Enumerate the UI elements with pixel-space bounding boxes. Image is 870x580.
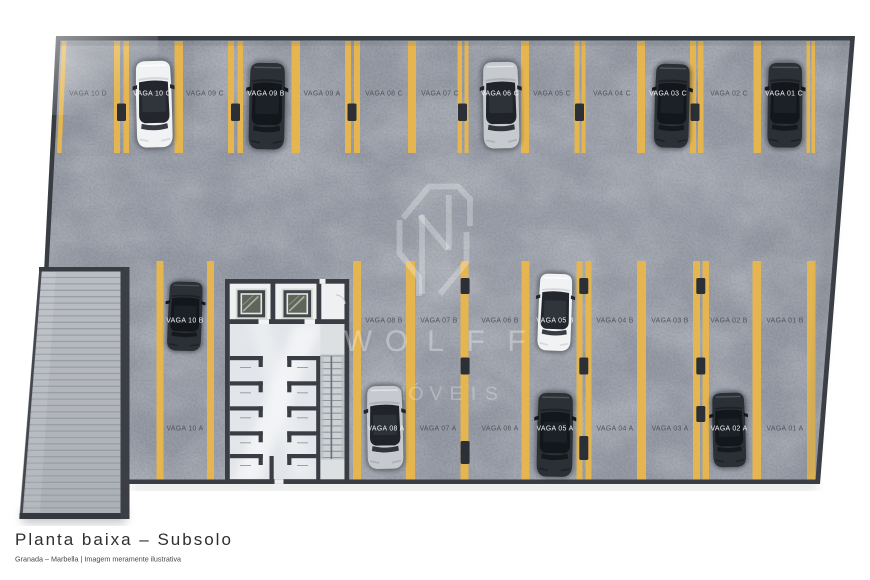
- svg-text:VAGA 01 C: VAGA 01 C: [765, 91, 803, 98]
- svg-text:VAGA 08 C: VAGA 08 C: [365, 91, 403, 98]
- svg-text:VAGA 03 B: VAGA 03 B: [651, 318, 689, 325]
- svg-text:VAGA 10 B: VAGA 10 B: [166, 318, 204, 325]
- svg-text:VAGA 06 C: VAGA 06 C: [481, 91, 519, 98]
- svg-text:VAGA 02 C: VAGA 02 C: [710, 91, 748, 98]
- svg-text:O: O: [385, 325, 408, 358]
- svg-text:VAGA 05 A: VAGA 05 A: [536, 426, 573, 433]
- svg-text:VAGA 09 C: VAGA 09 C: [186, 91, 224, 98]
- svg-text:VAGA 04 A: VAGA 04 A: [596, 426, 633, 433]
- svg-text:VAGA 02 B: VAGA 02 B: [710, 318, 748, 325]
- svg-text:VAGA 07 C: VAGA 07 C: [421, 91, 459, 98]
- svg-text:VAGA 04 C: VAGA 04 C: [593, 91, 631, 98]
- svg-text:VAGA 05 C: VAGA 05 C: [533, 91, 571, 98]
- svg-text:I: I: [471, 383, 476, 405]
- svg-text:VAGA 06 B: VAGA 06 B: [481, 318, 519, 325]
- svg-text:VAGA 03 C: VAGA 03 C: [649, 91, 687, 98]
- svg-text:VAGA 08 B: VAGA 08 B: [365, 318, 403, 325]
- svg-text:Ó: Ó: [408, 382, 423, 405]
- svg-text:Granada – Marbella | Imagem me: Granada – Marbella | Imagem meramente il…: [15, 555, 181, 564]
- svg-text:VAGA 06 A: VAGA 06 A: [481, 426, 518, 433]
- svg-text:VAGA 07 B: VAGA 07 B: [420, 318, 458, 325]
- svg-text:V: V: [429, 383, 442, 405]
- svg-text:Planta baixa – Subsolo: Planta baixa – Subsolo: [15, 530, 233, 549]
- svg-text:VAGA 08 A: VAGA 08 A: [367, 426, 404, 433]
- svg-text:VAGA 01 B: VAGA 01 B: [766, 318, 804, 325]
- svg-text:VAGA 09 B: VAGA 09 B: [247, 91, 285, 98]
- svg-text:VAGA 09 A: VAGA 09 A: [303, 91, 340, 98]
- svg-text:VAGA 03 A: VAGA 03 A: [651, 426, 688, 433]
- svg-text:L: L: [427, 325, 444, 358]
- svg-text:VAGA 04 B: VAGA 04 B: [596, 318, 634, 325]
- svg-text:S: S: [485, 383, 498, 405]
- svg-text:VAGA 05 B: VAGA 05 B: [536, 318, 574, 325]
- svg-text:E: E: [449, 383, 462, 405]
- svg-text:F: F: [466, 325, 484, 358]
- svg-text:VAGA 01 A: VAGA 01 A: [766, 426, 803, 433]
- svg-text:VAGA 10 A: VAGA 10 A: [166, 426, 203, 433]
- svg-text:VAGA 07 A: VAGA 07 A: [419, 426, 456, 433]
- svg-text:F: F: [507, 325, 525, 358]
- svg-text:W: W: [344, 325, 373, 358]
- svg-text:VAGA 02 A: VAGA 02 A: [710, 426, 747, 433]
